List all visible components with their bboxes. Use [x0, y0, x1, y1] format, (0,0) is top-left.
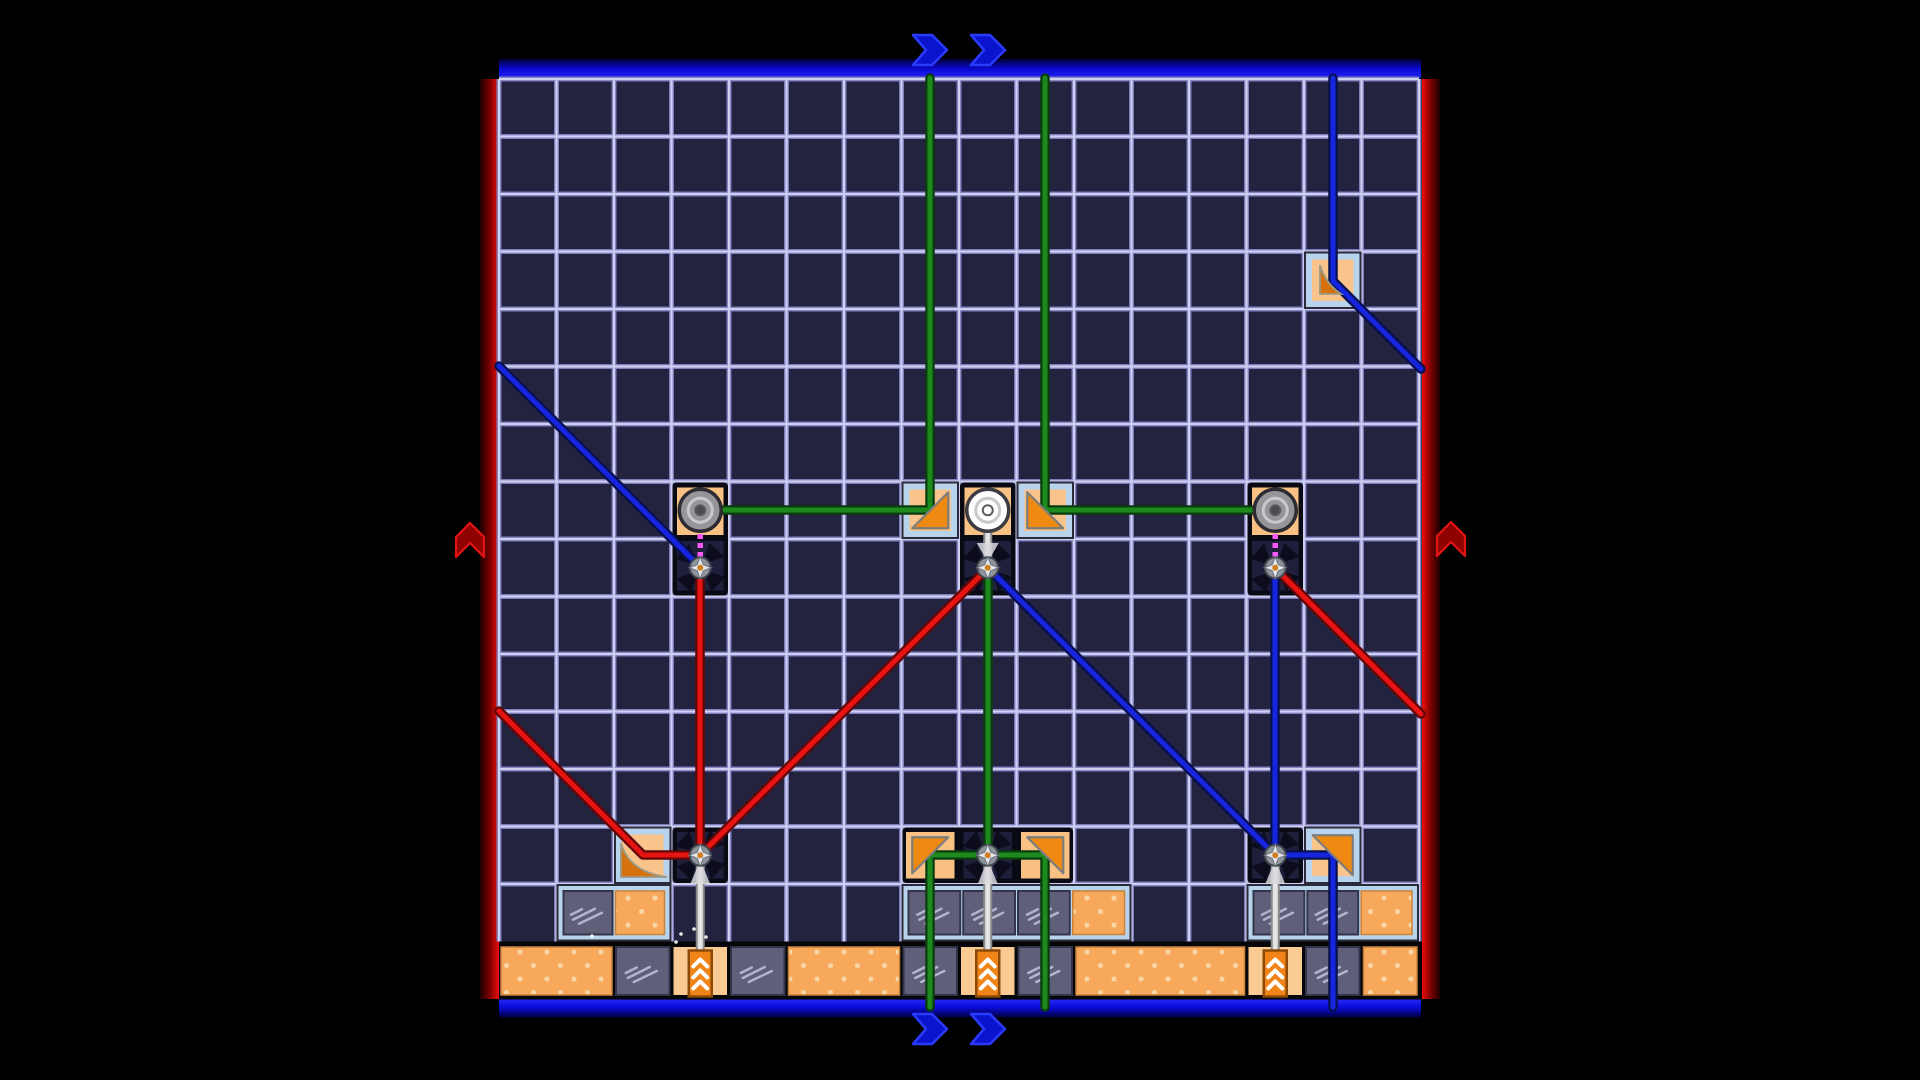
knob-white[interactable]: [967, 489, 1009, 531]
knob-gray[interactable]: [1254, 489, 1296, 531]
game-screen: [0, 0, 1920, 1080]
dotted-block[interactable]: [616, 891, 665, 935]
pivot-star[interactable]: [977, 844, 999, 866]
border-bottom: [499, 1000, 1421, 1018]
sparkle-icon: [692, 927, 696, 931]
sparkle-icon: [679, 932, 683, 936]
framed-unit: [558, 885, 671, 941]
sparkle-icon: [590, 934, 594, 938]
pivot-star[interactable]: [689, 844, 711, 866]
puzzle-board[interactable]: [0, 0, 1920, 1080]
piston-plunger[interactable]: [976, 951, 999, 997]
knob-gray[interactable]: [679, 489, 721, 531]
pivot-star[interactable]: [977, 557, 999, 579]
sparkle-icon: [704, 935, 708, 939]
piston-plunger[interactable]: [689, 951, 712, 997]
dotted-block[interactable]: [501, 947, 612, 995]
dotted-block[interactable]: [1073, 891, 1125, 935]
border-top: [499, 59, 1421, 78]
pivot-star[interactable]: [1264, 557, 1286, 579]
dotted-block[interactable]: [1361, 891, 1412, 935]
sparkle-icon: [674, 940, 678, 944]
pivot-star[interactable]: [1264, 844, 1286, 866]
piston-plunger[interactable]: [1264, 951, 1287, 997]
framed-unit: [903, 885, 1131, 941]
dotted-block[interactable]: [789, 947, 900, 995]
dotted-block[interactable]: [1076, 947, 1245, 995]
dotted-block[interactable]: [1364, 947, 1418, 995]
pivot-star[interactable]: [689, 557, 711, 579]
